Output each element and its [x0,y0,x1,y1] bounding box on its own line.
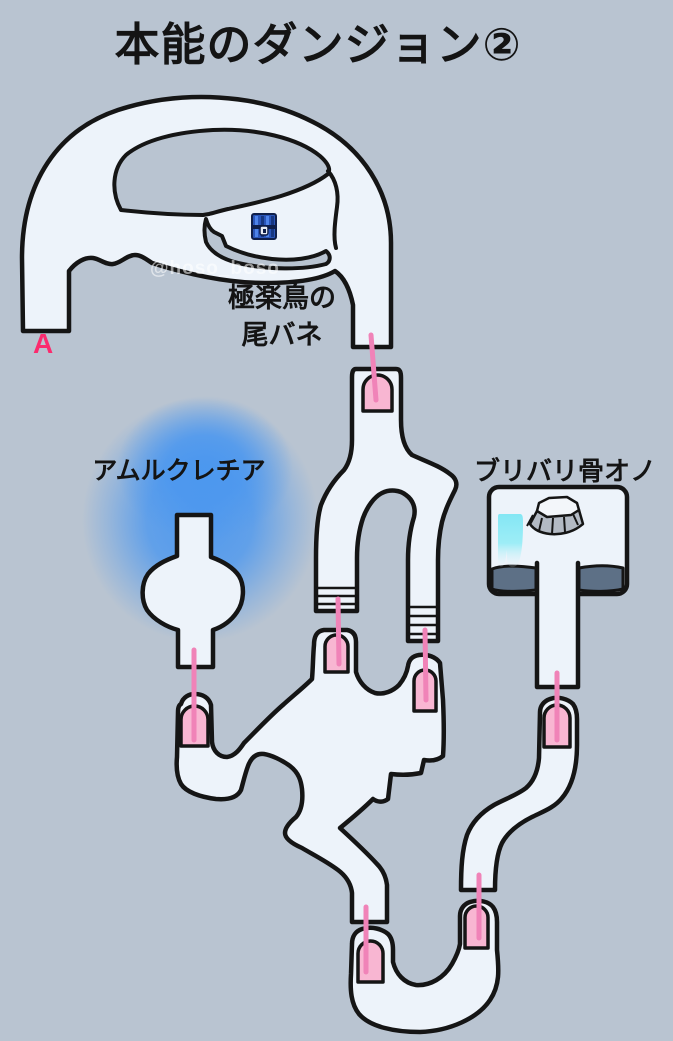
map-title: 本能のダンジョン② [88,8,548,73]
bone-axe-room-corridor [537,563,578,687]
dark-ledge-left [492,566,536,591]
central-hub-region [177,630,444,922]
label-paradise-feather-line2: 尾バネ [208,317,356,354]
label-amurukurechia: アムルクレチア [88,451,270,487]
label-entrance-a: A [33,328,53,360]
treasure-chest-icon [252,214,276,239]
watermark: @hoso_boso [150,258,280,280]
waterfall-icon [498,514,523,567]
door-marker-bottom-left [358,941,383,982]
door-connector-line [425,630,426,700]
dark-ledge-right [579,566,623,592]
label-paradise-feather: 極楽鳥の 尾バネ [208,280,356,354]
dungeon-map-page: 本能のダンジョン② @hoso_boso 極楽鳥の 尾バネ A アムルクレチア … [0,0,673,1041]
label-paradise-feather-line1: 極楽鳥の [208,280,356,317]
dungeon-map-canvas [0,0,673,1041]
door-connector-line [338,599,339,664]
label-bone-axe: ブリバリ骨オノ [474,451,656,488]
